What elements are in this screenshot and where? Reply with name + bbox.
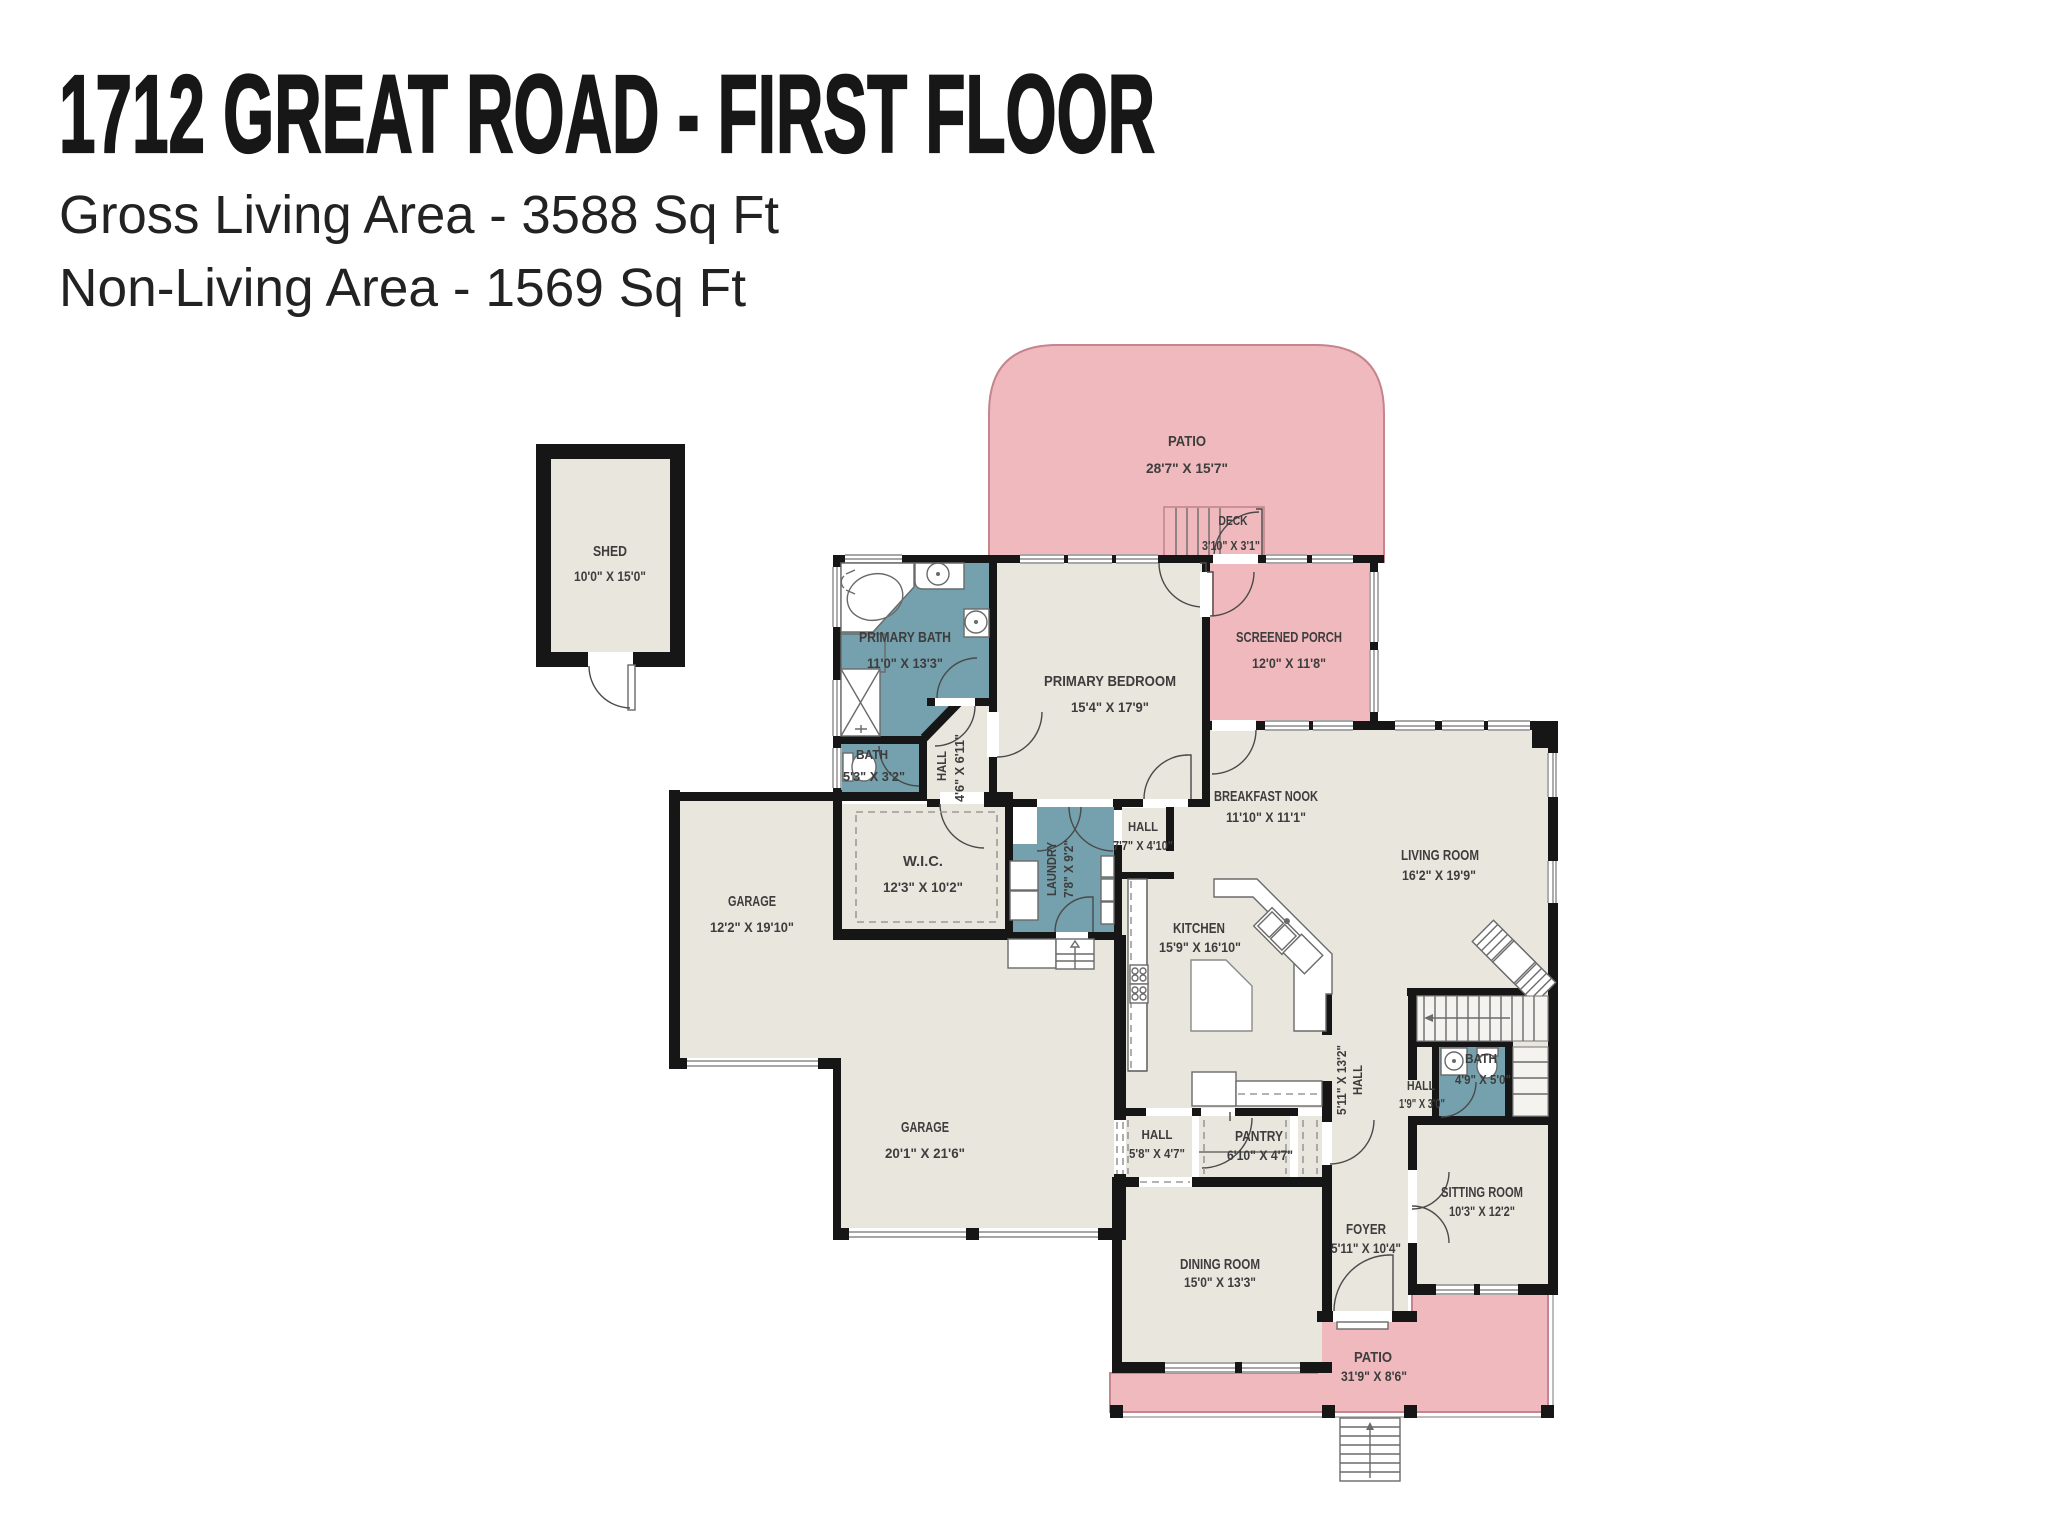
svg-text:11'10" X 11'1": 11'10" X 11'1" xyxy=(1226,809,1306,825)
svg-text:20'1" X 21'6": 20'1" X 21'6" xyxy=(885,1145,965,1161)
svg-text:12'0" X 11'8": 12'0" X 11'8" xyxy=(1252,655,1326,671)
svg-text:KITCHEN: KITCHEN xyxy=(1173,920,1225,937)
svg-text:PATIO: PATIO xyxy=(1168,433,1206,450)
svg-text:PATIO: PATIO xyxy=(1354,1349,1392,1366)
svg-text:HALL: HALL xyxy=(934,751,949,781)
svg-text:5'3" X 3'2": 5'3" X 3'2" xyxy=(843,770,905,784)
svg-text:5'8" X 4'7": 5'8" X 4'7" xyxy=(1129,1147,1185,1161)
svg-text:12'3" X 10'2": 12'3" X 10'2" xyxy=(883,879,963,895)
svg-text:6'10" X 4'7": 6'10" X 4'7" xyxy=(1227,1147,1293,1163)
svg-text:LIVING ROOM: LIVING ROOM xyxy=(1401,847,1479,864)
svg-text:HALL: HALL xyxy=(1128,819,1158,834)
svg-text:PRIMARY BATH: PRIMARY BATH xyxy=(859,629,951,646)
svg-text:SITTING ROOM: SITTING ROOM xyxy=(1441,1184,1523,1201)
svg-text:10'3" X 12'2": 10'3" X 12'2" xyxy=(1449,1203,1515,1219)
svg-text:LAUNDRY: LAUNDRY xyxy=(1044,842,1059,896)
svg-text:12'2" X 19'10": 12'2" X 19'10" xyxy=(710,919,794,935)
svg-text:BREAKFAST NOOK: BREAKFAST NOOK xyxy=(1214,788,1318,805)
svg-text:31'9" X 8'6": 31'9" X 8'6" xyxy=(1341,1368,1407,1384)
svg-text:HALL: HALL xyxy=(1350,1065,1365,1095)
svg-text:SCREENED PORCH: SCREENED PORCH xyxy=(1236,629,1342,646)
svg-text:15'9" X 16'10": 15'9" X 16'10" xyxy=(1159,939,1241,955)
svg-text:DECK: DECK xyxy=(1219,513,1248,528)
svg-text:W.I.C.: W.I.C. xyxy=(903,853,943,870)
svg-text:28'7" X 15'7": 28'7" X 15'7" xyxy=(1146,460,1228,476)
svg-text:DINING ROOM: DINING ROOM xyxy=(1180,1256,1260,1273)
svg-text:HALL: HALL xyxy=(1407,1078,1435,1093)
svg-text:16'2" X 19'9": 16'2" X 19'9" xyxy=(1402,867,1476,883)
svg-text:5'11" X 10'4": 5'11" X 10'4" xyxy=(1331,1240,1401,1256)
svg-text:HALL: HALL xyxy=(1142,1127,1173,1142)
svg-text:Gross Living Area - 3588 Sq Ft: Gross Living Area - 3588 Sq Ft xyxy=(59,185,779,245)
svg-text:SHED: SHED xyxy=(593,543,627,560)
svg-text:3'10" X 3'1": 3'10" X 3'1" xyxy=(1202,539,1260,553)
svg-text:Non-Living Area - 1569 Sq Ft: Non-Living Area - 1569 Sq Ft xyxy=(59,258,746,318)
svg-text:4'9" X 5'0": 4'9" X 5'0" xyxy=(1455,1073,1511,1087)
svg-text:1712 GREAT ROAD - FIRST FLOOR: 1712 GREAT ROAD - FIRST FLOOR xyxy=(59,53,1155,176)
svg-text:15'4" X 17'9": 15'4" X 17'9" xyxy=(1071,699,1149,715)
svg-text:7'8" X 9'2": 7'8" X 9'2" xyxy=(1062,840,1076,898)
svg-text:FOYER: FOYER xyxy=(1346,1221,1386,1238)
svg-text:5'11" X 13'2": 5'11" X 13'2" xyxy=(1335,1045,1349,1115)
svg-text:7'7" X 4'10": 7'7" X 4'10" xyxy=(1113,839,1173,853)
svg-text:GARAGE: GARAGE xyxy=(728,893,776,910)
svg-text:PRIMARY BEDROOM: PRIMARY BEDROOM xyxy=(1044,673,1176,690)
svg-text:BATH: BATH xyxy=(1465,1051,1497,1066)
svg-text:1'9" X 3'0": 1'9" X 3'0" xyxy=(1399,1097,1445,1111)
svg-text:PANTRY: PANTRY xyxy=(1235,1128,1283,1145)
svg-text:15'0" X 13'3": 15'0" X 13'3" xyxy=(1184,1274,1256,1290)
svg-text:11'0" X 13'3": 11'0" X 13'3" xyxy=(867,655,943,671)
svg-text:10'0" X 15'0": 10'0" X 15'0" xyxy=(574,568,646,584)
svg-text:BATH: BATH xyxy=(856,747,888,762)
svg-text:4'6" X 6'11": 4'6" X 6'11" xyxy=(953,734,967,802)
svg-text:GARAGE: GARAGE xyxy=(901,1119,949,1136)
